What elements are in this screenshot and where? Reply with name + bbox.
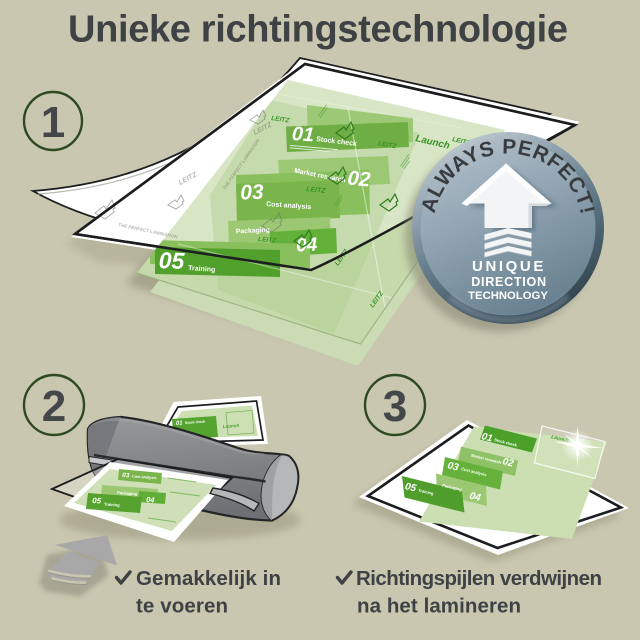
svg-text:03: 03 xyxy=(240,181,264,205)
svg-text:03: 03 xyxy=(122,472,130,480)
svg-text:3: 3 xyxy=(383,382,407,431)
svg-text:2: 2 xyxy=(42,382,66,431)
svg-text:Unieke richtingstechnologie: Unieke richtingstechnologie xyxy=(68,9,568,51)
svg-text:UNIQUE: UNIQUE xyxy=(472,258,546,275)
svg-text:02: 02 xyxy=(347,167,372,192)
svg-text:te voeren: te voeren xyxy=(136,595,228,618)
svg-text:01: 01 xyxy=(176,420,184,426)
svg-text:Gemakkelijk in: Gemakkelijk in xyxy=(136,567,281,590)
svg-text:05: 05 xyxy=(92,496,102,506)
svg-text:Richtingspijlen verdwijnen: Richtingspijlen verdwijnen xyxy=(356,567,602,590)
svg-text:DIRECTION: DIRECTION xyxy=(471,275,547,289)
svg-text:1: 1 xyxy=(41,98,65,147)
svg-text:04: 04 xyxy=(146,495,156,505)
svg-text:TECHNOLOGY: TECHNOLOGY xyxy=(468,290,548,302)
svg-text:01: 01 xyxy=(291,123,315,146)
svg-text:na het lamineren: na het lamineren xyxy=(357,595,521,618)
